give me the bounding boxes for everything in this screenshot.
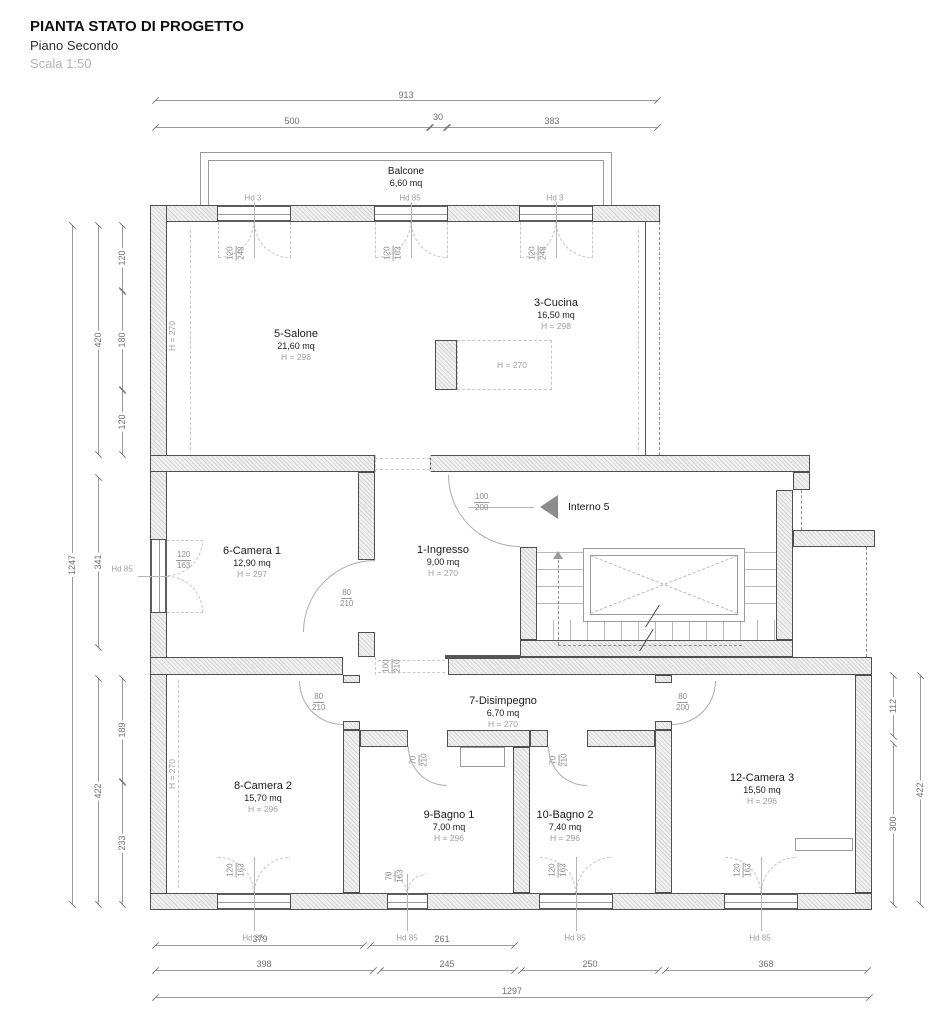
- dim-line: [155, 127, 430, 128]
- window-swing-arc: [167, 576, 203, 612]
- window-size-label: 120163: [383, 245, 403, 260]
- sill-label: Hd 85: [399, 194, 420, 203]
- wall: [150, 657, 343, 675]
- room-area: 15,50 mq: [730, 785, 794, 795]
- stair-up-arrow: [553, 551, 563, 559]
- opening-width: 120: [176, 550, 191, 561]
- opening-width: 70: [549, 755, 560, 766]
- room-label-ingresso: 1-Ingresso 9,00 mq H = 270: [417, 544, 469, 578]
- window-jamb-line: [167, 612, 203, 613]
- dim-line: [155, 970, 374, 971]
- wall: [587, 730, 655, 747]
- leader-line: [411, 202, 412, 258]
- window-size-label: 70163: [385, 869, 405, 882]
- opening-width: 120: [383, 245, 394, 260]
- dim-label: 250: [580, 959, 599, 969]
- window-jamb-line: [592, 222, 593, 258]
- room-area: 7,40 mq: [537, 822, 594, 832]
- opening-dash: [375, 458, 430, 459]
- dim-label: 1247: [67, 553, 77, 577]
- room-name: 5-Salone: [274, 328, 318, 340]
- dim-label: 422: [915, 780, 925, 799]
- opening-width: 70: [409, 755, 420, 766]
- dim-label: 383: [542, 116, 561, 126]
- sill-label: Hd 85: [242, 934, 263, 943]
- dim-label: 913: [396, 90, 415, 100]
- opening-width: 120: [733, 862, 744, 877]
- window-size-label: 120163: [733, 862, 753, 877]
- leader-line: [576, 857, 577, 931]
- opening-width: 80: [313, 692, 324, 703]
- stair-path-line: [558, 560, 559, 645]
- room-area: 9,00 mq: [417, 557, 469, 567]
- dim-label: 398: [254, 959, 273, 969]
- window-swing-arc: [254, 857, 290, 893]
- door-size-label: 100210: [382, 658, 402, 673]
- room-name: 9-Bagno 1: [424, 809, 475, 821]
- dim-label: 422: [93, 781, 103, 800]
- door-size-label: 80210: [312, 692, 325, 712]
- dim-label: 500: [282, 116, 301, 126]
- room-area: 15,70 mq: [234, 793, 292, 803]
- window-size-label: 120163: [548, 862, 568, 877]
- dim-line: [155, 945, 364, 946]
- opening-dash: [375, 469, 430, 470]
- opening-height: 210: [392, 659, 402, 672]
- dim-label: 189: [117, 720, 127, 739]
- stair-treads: [537, 550, 583, 620]
- opening-height: 248: [236, 246, 246, 259]
- room-area: 12,90 mq: [223, 558, 281, 568]
- boundary-line: [801, 490, 802, 530]
- opening-width: 120: [528, 245, 539, 260]
- room-height: H = 296: [424, 833, 475, 843]
- ceiling-guide: [638, 230, 639, 450]
- wall: [855, 675, 872, 893]
- opening-height: 200: [475, 503, 488, 513]
- wall: [520, 547, 537, 640]
- window-jamb-line: [218, 222, 219, 258]
- room-height: H = 298: [274, 352, 318, 362]
- opening-height: 210: [340, 599, 353, 609]
- wall-height-label: H = 270: [167, 749, 177, 799]
- dim-line: [155, 100, 658, 101]
- room-height: H = 296: [537, 833, 594, 843]
- window-jamb-line: [520, 222, 521, 258]
- wall: [150, 455, 375, 472]
- room-name: 10-Bagno 2: [537, 809, 594, 821]
- door-size-label: 100200: [474, 492, 489, 512]
- room-label-camera2: 8-Camera 2 15,70 mq H = 296: [234, 780, 292, 814]
- wall: [520, 640, 793, 657]
- room-name: 8-Camera 2: [234, 780, 292, 792]
- sill-label: Hd 3: [245, 194, 262, 203]
- room-label-salone: 5-Salone 21,60 mq H = 298: [274, 328, 318, 362]
- room-name: 7-Disimpegno: [469, 695, 537, 707]
- window-jamb-line: [290, 222, 291, 258]
- boundary-wall: [645, 222, 660, 455]
- opening-width: 120: [226, 862, 237, 877]
- leader-line: [556, 202, 557, 258]
- pillar: [435, 340, 457, 390]
- wall: [360, 730, 408, 747]
- dim-label: 368: [756, 959, 775, 969]
- dim-label: 233: [117, 833, 127, 852]
- opening-height: 163: [236, 863, 246, 876]
- wall: [447, 205, 520, 222]
- dim-line: [521, 970, 659, 971]
- dim-label: 341: [93, 552, 103, 571]
- wall: [447, 730, 530, 747]
- balcony-name: Balcone: [388, 166, 424, 177]
- room-height: H = 270: [417, 568, 469, 578]
- dim-line: [155, 997, 870, 998]
- stair-path-line: [558, 645, 742, 646]
- room-height: H = 298: [534, 321, 578, 331]
- room-height: H = 296: [730, 796, 794, 806]
- window-size-label: 120248: [528, 245, 548, 260]
- dim-line: [370, 945, 515, 946]
- room-label-camera1: 6-Camera 1 12,90 mq H = 297: [223, 545, 281, 579]
- opening-width: 70: [385, 871, 396, 882]
- room-area: 6,70 mq: [469, 708, 537, 718]
- stair-treads: [745, 550, 776, 620]
- window-jamb-line: [167, 540, 203, 541]
- room-label-cucina: 3-Cucina 16,50 mq H = 298: [534, 297, 578, 331]
- opening-height: 210: [312, 703, 325, 713]
- wall: [343, 721, 360, 730]
- dim-label: 245: [437, 959, 456, 969]
- ceiling-guide: [190, 230, 191, 450]
- window-swing-arc: [254, 222, 290, 258]
- entrance-arrow-icon: [540, 495, 558, 519]
- leader-line: [254, 202, 255, 258]
- stair-treads: [537, 620, 776, 640]
- window-size-label: 120163: [226, 862, 246, 877]
- dim-line: [380, 970, 515, 971]
- wall: [290, 205, 375, 222]
- room-label-bagno1: 9-Bagno 1 7,00 mq H = 296: [424, 809, 475, 843]
- door-size-label: 70210: [409, 753, 429, 766]
- wall: [793, 530, 875, 547]
- opening-width: 80: [677, 692, 688, 703]
- room-label-bagno2: 10-Bagno 2 7,40 mq H = 296: [537, 809, 594, 843]
- title-block: PIANTA STATO DI PROGETTO Piano Secondo S…: [30, 18, 244, 71]
- opening-width: 120: [226, 245, 237, 260]
- wall: [655, 721, 672, 730]
- dim-label: 420: [93, 330, 103, 349]
- sill-label: Hd 85: [749, 934, 770, 943]
- ceiling-height-label: H = 270: [497, 360, 527, 370]
- opening-height: 200: [676, 703, 689, 713]
- wall-height-label: H = 270: [167, 311, 177, 361]
- wall: [793, 472, 810, 490]
- dim-line: [665, 970, 868, 971]
- dim-line: [447, 127, 658, 128]
- window-swing-arc: [556, 222, 592, 258]
- window-swing-arc: [411, 222, 447, 258]
- room-area: 21,60 mq: [274, 341, 318, 351]
- wall: [797, 893, 872, 910]
- counter: [795, 838, 853, 851]
- room-label-camera3: 12-Camera 3 15,50 mq H = 296: [730, 772, 794, 806]
- wall: [592, 205, 660, 222]
- window-swing-arc: [761, 857, 797, 893]
- window-size-label: 120163: [176, 550, 191, 570]
- window-jamb-line: [447, 222, 448, 258]
- wall: [358, 472, 375, 560]
- sill-label: Hd 85: [564, 934, 585, 943]
- window-swing-arc: [576, 857, 612, 893]
- room-height: H = 296: [234, 804, 292, 814]
- opening-width: 100: [382, 658, 393, 673]
- opening-width: 100: [474, 492, 489, 503]
- wall: [290, 893, 388, 910]
- balcony-label: Balcone 6,60 mq: [388, 166, 424, 188]
- wall: [430, 455, 810, 472]
- dim-label: 180: [117, 330, 127, 349]
- wall: [343, 730, 360, 893]
- door-size-label: 70210: [549, 753, 569, 766]
- wall: [530, 730, 548, 747]
- boundary-line: [866, 547, 867, 657]
- wall: [776, 490, 793, 640]
- room-name: 12-Camera 3: [730, 772, 794, 784]
- opening-height: 163: [743, 863, 753, 876]
- wall: [427, 893, 540, 910]
- sill-label: Hd 85: [111, 565, 132, 574]
- opening-height: 163: [558, 863, 568, 876]
- entrance-label: Interno 5: [568, 501, 609, 513]
- door-size-label: 80200: [676, 692, 689, 712]
- leader-line: [761, 857, 762, 931]
- room-name: 1-Ingresso: [417, 544, 469, 556]
- wall: [358, 632, 375, 657]
- room-height: H = 297: [223, 569, 281, 579]
- opening-height: 210: [419, 753, 429, 766]
- opening-width: 80: [341, 588, 352, 599]
- wall: [150, 205, 167, 540]
- room-name: 3-Cucina: [534, 297, 578, 309]
- opening-height: 210: [559, 753, 569, 766]
- balcony-area: 6,60 mq: [388, 178, 424, 188]
- sill-label: Hd 85: [396, 934, 417, 943]
- room-area: 7,00 mq: [424, 822, 475, 832]
- room-area: 16,50 mq: [534, 310, 578, 320]
- dim-line: [430, 127, 447, 128]
- dim-label: 261: [432, 934, 451, 944]
- opening-height: 163: [393, 246, 403, 259]
- opening-height: 163: [395, 869, 405, 882]
- ceiling-guide: [178, 680, 179, 888]
- window-size-label: 120248: [226, 245, 246, 260]
- opening-width: 120: [548, 862, 559, 877]
- dim-label: 300: [888, 814, 898, 833]
- window-jamb-line: [375, 222, 376, 258]
- page-title: PIANTA STATO DI PROGETTO: [30, 18, 244, 35]
- window-swing-arc: [407, 874, 426, 893]
- wall: [448, 657, 872, 675]
- wall: [513, 747, 530, 893]
- leader-line: [254, 857, 255, 931]
- wall: [655, 675, 672, 683]
- dim-label: 30: [431, 112, 445, 122]
- sill-label: Hd 3: [547, 194, 564, 203]
- room-label-disimpegno: 7-Disimpegno 6,70 mq H = 270: [469, 695, 537, 729]
- sliding-door-leaf: [445, 655, 520, 659]
- floor-label: Piano Secondo: [30, 38, 244, 53]
- floor-plan: PIANTA STATO DI PROGETTO Piano Secondo S…: [0, 0, 948, 1024]
- dim-label: 112: [888, 697, 898, 715]
- dim-label: 1297: [500, 986, 524, 996]
- door-swing-arc: [303, 560, 375, 632]
- opening-dash: [430, 455, 431, 472]
- scale-label: Scala 1:50: [30, 56, 244, 71]
- wall: [655, 730, 672, 893]
- leader-line: [138, 576, 167, 577]
- door-size-label: 80210: [340, 588, 353, 608]
- room-name: 6-Camera 1: [223, 545, 281, 557]
- opening-height: 163: [177, 561, 190, 571]
- opening-height: 248: [538, 246, 548, 259]
- wall: [343, 675, 360, 683]
- opening-dash: [375, 657, 376, 675]
- wall: [150, 893, 218, 910]
- dim-label: 120: [117, 248, 127, 267]
- washbasin: [460, 747, 505, 767]
- dim-label: 120: [117, 412, 127, 431]
- room-height: H = 270: [469, 719, 537, 729]
- wall: [612, 893, 725, 910]
- leader-line: [407, 874, 408, 931]
